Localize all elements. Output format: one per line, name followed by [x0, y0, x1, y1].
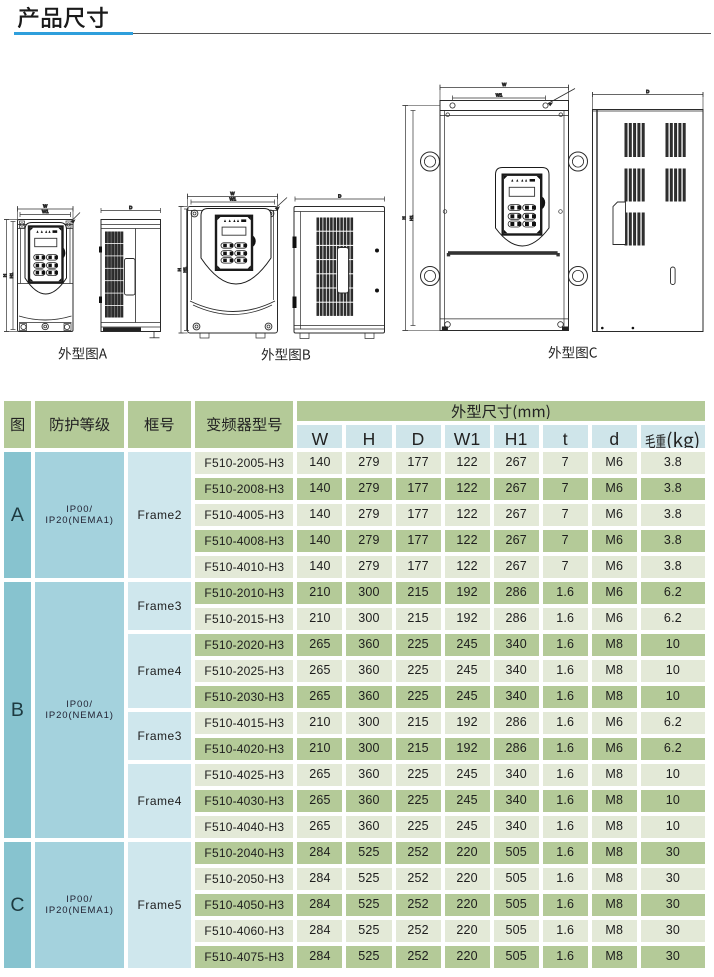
svg-text:H1: H1 — [409, 215, 414, 221]
svg-text:D: D — [646, 89, 649, 94]
svg-text:H: H — [3, 274, 8, 277]
svg-text:W: W — [502, 82, 507, 87]
svg-text:W1: W1 — [496, 93, 503, 98]
svg-text:H1: H1 — [9, 272, 14, 278]
svg-text:W: W — [230, 191, 235, 196]
svg-text:D: D — [338, 194, 341, 199]
svg-text:H: H — [402, 216, 407, 219]
svg-text:W1: W1 — [229, 197, 236, 202]
svg-text:H: H — [177, 268, 182, 271]
svg-text:W: W — [43, 204, 48, 209]
svg-text:H1: H1 — [183, 266, 188, 272]
svg-text:W1: W1 — [42, 209, 49, 214]
svg-text:D: D — [129, 205, 132, 210]
